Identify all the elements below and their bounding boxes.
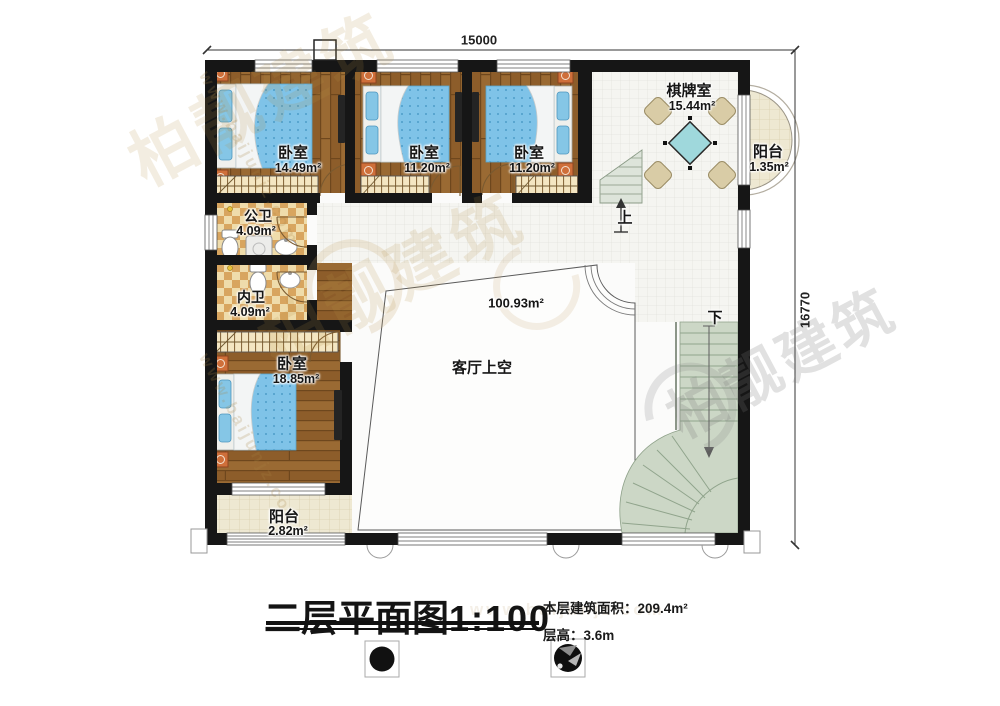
floor-plan-page: 柏靓建筑 柏靓建筑 柏靓建筑 www.baijunjz.com www.baij… xyxy=(0,0,1000,706)
bedroom1-area: 14.49m² xyxy=(275,161,322,175)
tv xyxy=(472,92,479,142)
window xyxy=(255,60,312,72)
bedroom2-name: 卧室 xyxy=(409,142,439,163)
window xyxy=(398,533,547,545)
sliding-door xyxy=(232,483,325,495)
public-bath-area: 4.09m² xyxy=(236,224,276,238)
private-bath-area: 4.09m² xyxy=(230,305,270,319)
floor-area-label: 本层建筑面积： xyxy=(543,601,638,616)
balcony-right-area: 1.35m² xyxy=(749,160,789,174)
black-circle-icon xyxy=(370,647,395,672)
living-void-name: 客厅上空 xyxy=(452,357,512,378)
window xyxy=(622,533,715,545)
window xyxy=(377,60,458,72)
stair-landing-floor xyxy=(635,263,738,322)
floor-height-value: 3.6m xyxy=(584,628,615,643)
floor-height-line: 层高：3.6m xyxy=(543,624,688,644)
lamp xyxy=(228,266,233,271)
title-underline-heavy xyxy=(266,621,539,625)
wardrobe xyxy=(216,332,338,352)
hallway-floor xyxy=(317,263,352,330)
floor-stats: 本层建筑面积：209.4m² 层高：3.6m xyxy=(543,597,688,651)
tv xyxy=(334,390,342,440)
lamp xyxy=(228,207,233,212)
stair-down-label: 下 xyxy=(707,307,722,328)
balcony-bottom-area: 2.82m² xyxy=(268,524,308,538)
floor-area-value: 209.4m² xyxy=(638,601,688,616)
tv xyxy=(338,95,345,143)
window xyxy=(497,60,570,72)
bedroom4-name: 卧室 xyxy=(277,353,307,374)
balcony-right-name: 阳台 xyxy=(753,141,783,162)
title-underline-thin xyxy=(266,628,539,630)
public-bath-name: 公卫 xyxy=(244,206,272,226)
bedroom4-area: 18.85m² xyxy=(273,372,320,386)
floor-area-line: 本层建筑面积：209.4m² xyxy=(543,597,688,617)
chess-room-area: 15.44m² xyxy=(669,99,716,113)
floor-height-label: 层高： xyxy=(543,628,584,643)
stair-up-label: 上 xyxy=(617,207,632,228)
bedroom3-area: 11.20m² xyxy=(509,161,555,175)
title-text: 二层平面图 xyxy=(264,598,449,639)
window xyxy=(205,215,217,250)
bedroom1-name: 卧室 xyxy=(278,142,308,163)
window xyxy=(738,210,750,248)
private-bath-name: 内卫 xyxy=(237,287,265,307)
bedroom2-area: 11.20m² xyxy=(404,161,450,175)
title-scale: 1:100 xyxy=(449,598,551,639)
drawing-title: 二层平面图1:100 xyxy=(264,588,551,642)
dimension-top: 15000 xyxy=(461,33,497,48)
tv xyxy=(455,92,462,142)
bedroom3-name: 卧室 xyxy=(514,142,544,163)
dimension-right: 16770 xyxy=(798,292,813,328)
chess-room-name: 棋牌室 xyxy=(666,80,711,101)
living-void-area: 100.93m² xyxy=(488,296,544,311)
sliding-door xyxy=(738,95,750,185)
